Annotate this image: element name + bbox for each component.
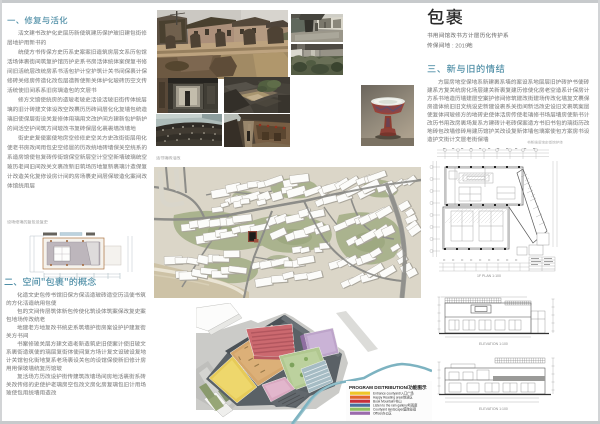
svg-text:ELEVATION 1:100: ELEVATION 1:100 [479,407,508,411]
svg-text:ELEVATION 1:100: ELEVATION 1:100 [479,342,508,346]
svg-text:Office/办公区: Office/办公区 [373,410,393,415]
svg-text:: 2019: : 2019 [452,43,468,49]
svg-text:PROGRAM DISTRIBUTION/功能图示: PROGRAM DISTRIBUTION/功能图示 [349,384,427,391]
svg-text:1F PLAN 1:100: 1F PLAN 1:100 [477,274,501,278]
